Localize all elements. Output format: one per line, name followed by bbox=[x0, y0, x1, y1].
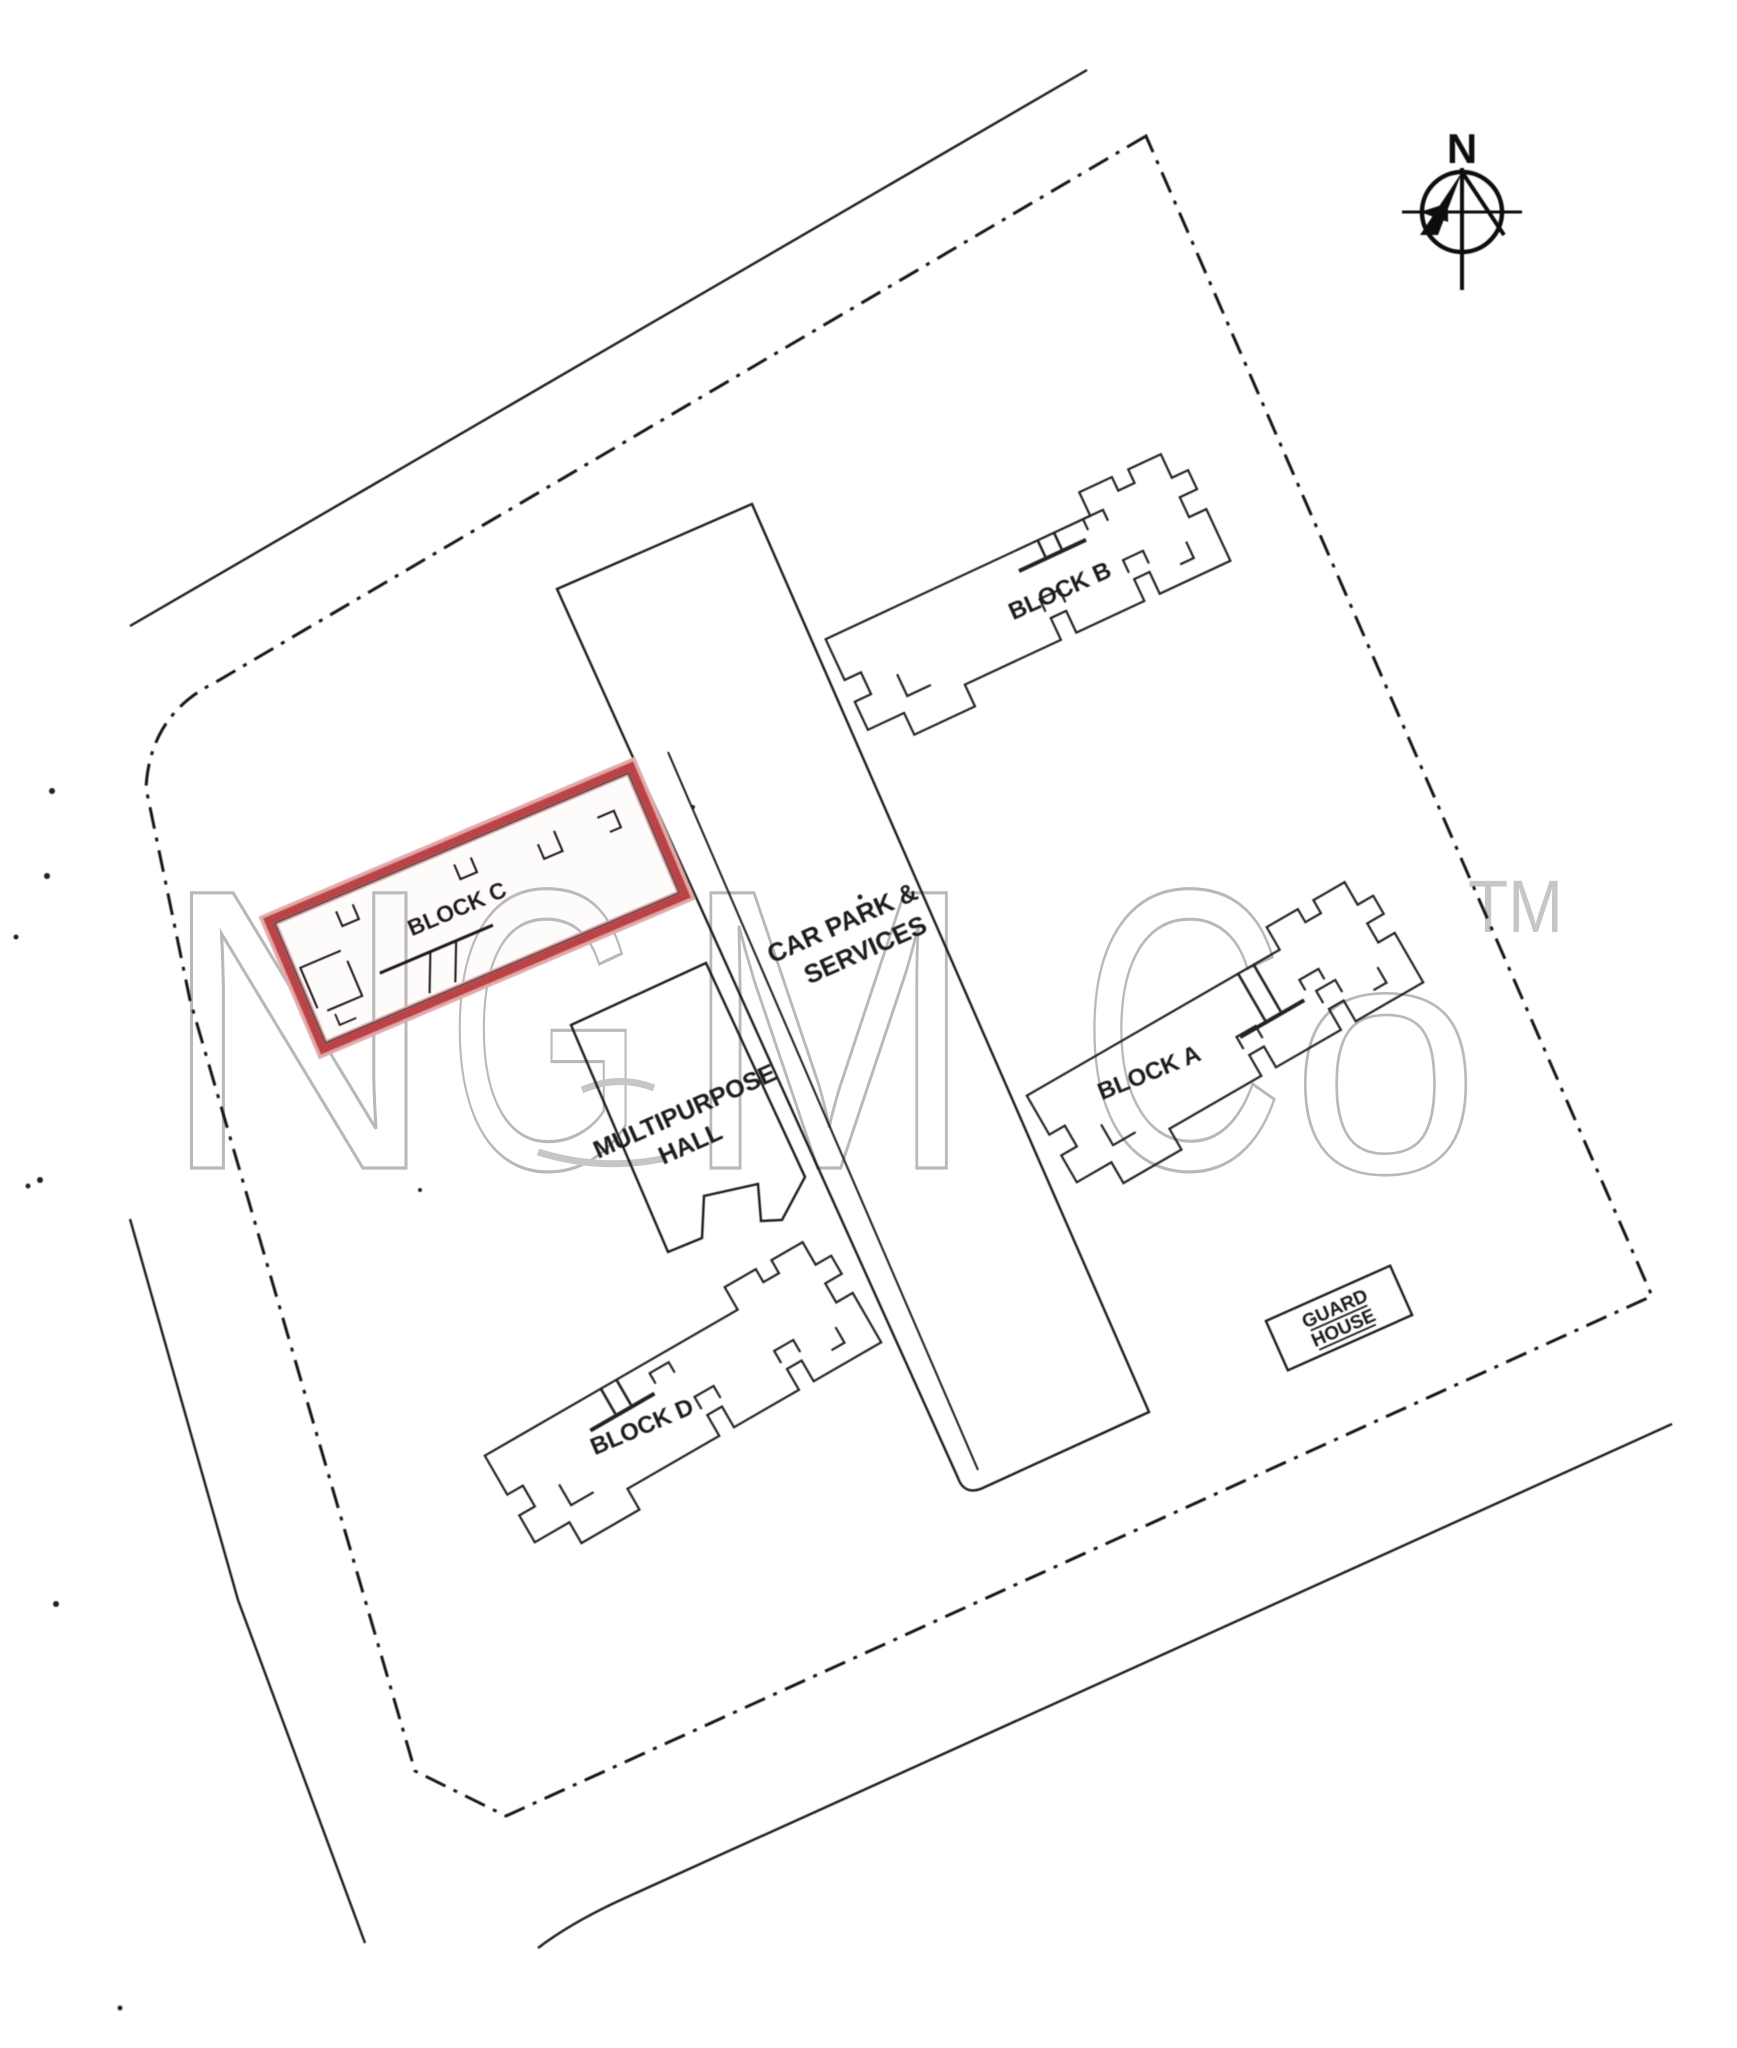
svg-text:N: N bbox=[1447, 125, 1477, 172]
svg-text:M: M bbox=[682, 806, 975, 1253]
svg-text:o: o bbox=[1291, 873, 1480, 1244]
